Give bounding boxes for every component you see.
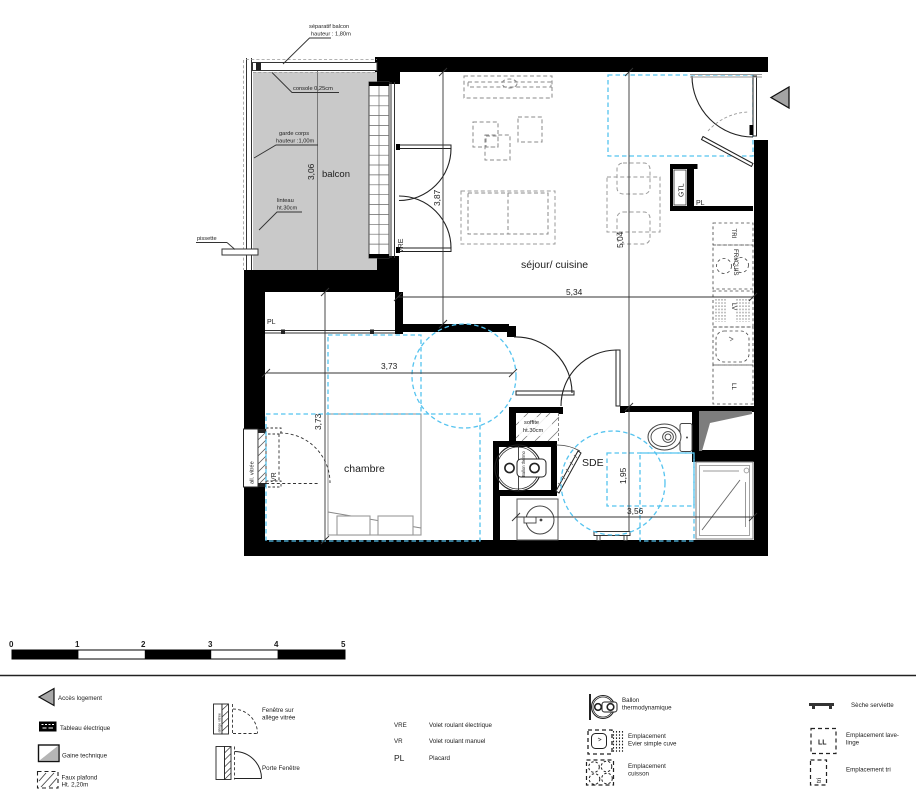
svg-text:3,87: 3,87 bbox=[432, 189, 442, 206]
svg-text:Volet roulant électrique: Volet roulant électrique bbox=[429, 722, 493, 729]
svg-text:PL: PL bbox=[267, 319, 276, 326]
svg-text:séjour/ cuisine: séjour/ cuisine bbox=[521, 259, 588, 271]
svg-text:5: 5 bbox=[341, 640, 346, 649]
svg-text:2: 2 bbox=[141, 640, 146, 649]
svg-text:Placard: Placard bbox=[429, 755, 451, 762]
svg-text:Faux plafond: Faux plafond bbox=[62, 775, 98, 782]
svg-text:séparatif balcon: séparatif balcon bbox=[309, 24, 349, 30]
svg-text:VR: VR bbox=[394, 738, 403, 745]
svg-text:cuisson: cuisson bbox=[628, 771, 650, 778]
svg-text:1: 1 bbox=[75, 640, 80, 649]
svg-text:3,73: 3,73 bbox=[381, 361, 398, 371]
svg-text:SDE: SDE bbox=[582, 457, 604, 469]
svg-text:chambre: chambre bbox=[344, 463, 385, 475]
svg-text:balcon: balcon bbox=[322, 169, 350, 180]
svg-text:3,56: 3,56 bbox=[627, 506, 644, 516]
svg-text:Evier simple cuve: Evier simple cuve bbox=[628, 741, 677, 748]
svg-text:Gaine technique: Gaine technique bbox=[62, 753, 108, 760]
svg-text:4: 4 bbox=[274, 640, 279, 649]
svg-text:FRI/CUIS: FRI/CUIS bbox=[732, 249, 739, 275]
svg-text:Emplacement lave-: Emplacement lave- bbox=[846, 732, 899, 739]
svg-text:5,04: 5,04 bbox=[615, 231, 625, 248]
svg-text:thermodynamique: thermodynamique bbox=[622, 705, 672, 712]
svg-text:PL: PL bbox=[394, 753, 405, 763]
svg-text:allège vitrée: allège vitrée bbox=[262, 715, 296, 722]
svg-text:allège vitrée: allège vitrée bbox=[218, 713, 222, 732]
svg-text:VRE: VRE bbox=[398, 238, 405, 253]
svg-text:1,95: 1,95 bbox=[618, 467, 628, 484]
svg-text:Accès logement: Accès logement bbox=[58, 695, 102, 702]
svg-text:Ballon: Ballon bbox=[622, 697, 640, 704]
svg-text:console 0,25cm: console 0,25cm bbox=[293, 86, 333, 92]
svg-text:soffite: soffite bbox=[524, 420, 539, 426]
svg-text:3,73: 3,73 bbox=[313, 413, 323, 430]
svg-text:0: 0 bbox=[9, 640, 14, 649]
svg-text:Ht. 2,20m: Ht. 2,20m bbox=[62, 782, 89, 789]
svg-text:pissette: pissette bbox=[197, 236, 217, 242]
svg-text:hauteur :1,00m: hauteur :1,00m bbox=[276, 139, 315, 145]
svg-text:Ballon thermo: Ballon thermo bbox=[521, 450, 526, 477]
svg-text:Emplacement: Emplacement bbox=[628, 763, 666, 770]
svg-text:ht.30cm: ht.30cm bbox=[277, 206, 297, 212]
svg-text:Volet roulant manuel: Volet roulant manuel bbox=[429, 738, 485, 745]
svg-text:ht.30cm: ht.30cm bbox=[523, 428, 543, 434]
svg-text:Porte Fenêtre: Porte Fenêtre bbox=[262, 765, 300, 772]
svg-text:Emplacement tri: Emplacement tri bbox=[846, 767, 891, 774]
svg-text:Fenêtre sur: Fenêtre sur bbox=[262, 707, 294, 714]
svg-text:Sèche serviette: Sèche serviette bbox=[851, 702, 894, 709]
svg-text:GTL: GTL bbox=[679, 183, 686, 197]
svg-text:5,34: 5,34 bbox=[566, 287, 583, 297]
svg-text:LV: LV bbox=[730, 303, 737, 311]
svg-text:Emplacement: Emplacement bbox=[628, 733, 666, 740]
svg-text:3,06: 3,06 bbox=[306, 163, 316, 180]
svg-text:3: 3 bbox=[208, 640, 213, 649]
svg-text:hauteur : 1,80m: hauteur : 1,80m bbox=[311, 32, 351, 38]
svg-text:all. vitrée: all. vitrée bbox=[250, 461, 256, 484]
svg-text:linge: linge bbox=[846, 740, 860, 747]
svg-text:Tableau électrique: Tableau électrique bbox=[60, 725, 111, 732]
svg-text:tri: tri bbox=[816, 778, 823, 783]
svg-text:TRI: TRI bbox=[730, 229, 737, 239]
svg-text:linteau: linteau bbox=[277, 198, 294, 204]
svg-text:PL: PL bbox=[696, 200, 705, 207]
svg-text:LL: LL bbox=[818, 740, 827, 747]
svg-text:VRE: VRE bbox=[394, 722, 407, 729]
svg-text:LL: LL bbox=[730, 383, 737, 390]
svg-text:garde corps: garde corps bbox=[279, 131, 309, 137]
svg-text:VR: VR bbox=[271, 472, 278, 482]
